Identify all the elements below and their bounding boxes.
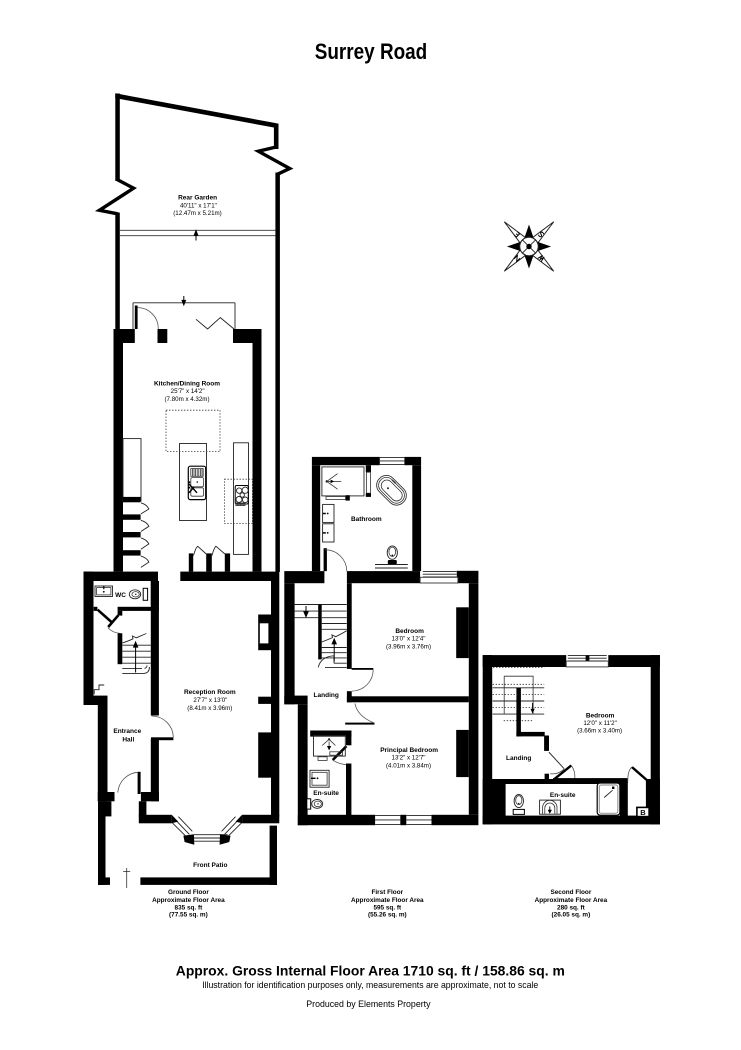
svg-text:12'0" x 11'2": 12'0" x 11'2" xyxy=(583,720,616,727)
svg-text:Landing: Landing xyxy=(314,692,339,699)
svg-text:Bedroom: Bedroom xyxy=(586,712,615,719)
svg-text:13'2" x 12'7": 13'2" x 12'7" xyxy=(392,755,426,762)
svg-text:Rear Garden: Rear Garden xyxy=(178,195,217,202)
svg-text:(77.55 sq. m): (77.55 sq. m) xyxy=(169,912,208,919)
svg-text:Principal Bedroom: Principal Bedroom xyxy=(380,747,438,754)
svg-text:595 sq. ft: 595 sq. ft xyxy=(373,904,402,911)
svg-text:(4.01m x 3.84m): (4.01m x 3.84m) xyxy=(386,762,431,769)
svg-text:Kitchen/Dining Room: Kitchen/Dining Room xyxy=(154,380,220,387)
svg-text:Ground Floor: Ground Floor xyxy=(168,889,209,896)
svg-text:Surrey Road: Surrey Road xyxy=(315,39,428,64)
svg-text:Approx. Gross Internal Floor A: Approx. Gross Internal Floor Area 1710 s… xyxy=(176,962,565,978)
svg-text:(7.80m x 4.32m): (7.80m x 4.32m) xyxy=(164,396,209,403)
svg-text:Bedroom: Bedroom xyxy=(395,628,424,635)
svg-text:27'7" x 13'0": 27'7" x 13'0" xyxy=(193,697,227,704)
svg-text:Approximate Floor Area: Approximate Floor Area xyxy=(152,897,225,904)
svg-text:First Floor: First Floor xyxy=(371,889,403,896)
svg-text:40'11" x 17'1": 40'11" x 17'1" xyxy=(180,202,217,209)
svg-text:Front Patio: Front Patio xyxy=(193,862,227,869)
svg-text:Second Floor: Second Floor xyxy=(550,889,591,896)
svg-text:(3.66m x 3.40m): (3.66m x 3.40m) xyxy=(577,728,622,735)
svg-text:WC: WC xyxy=(115,592,126,599)
svg-text:Landing: Landing xyxy=(506,755,531,762)
svg-text:Approximate Floor Area: Approximate Floor Area xyxy=(351,897,424,904)
svg-text:(26.05 sq. m): (26.05 sq. m) xyxy=(552,912,591,919)
svg-text:280 sq. ft: 280 sq. ft xyxy=(557,904,586,911)
svg-text:(55.26 sq. m): (55.26 sq. m) xyxy=(368,912,407,919)
svg-text:Produced by Elements Property: Produced by Elements Property xyxy=(306,999,431,1009)
svg-text:En-suite: En-suite xyxy=(313,790,339,797)
svg-text:Illustration for identificatio: Illustration for identification purposes… xyxy=(202,980,538,990)
svg-text:Reception Room: Reception Room xyxy=(184,689,236,696)
svg-text:835 sq. ft: 835 sq. ft xyxy=(175,904,204,911)
svg-text:B: B xyxy=(640,808,646,817)
svg-text:Bathroom: Bathroom xyxy=(351,516,382,523)
svg-text:(8.41m x 3.96m): (8.41m x 3.96m) xyxy=(187,705,232,712)
svg-text:En-suite: En-suite xyxy=(550,792,576,799)
svg-text:(3.96m x 3.76m): (3.96m x 3.76m) xyxy=(386,643,431,650)
svg-text:Approximate Floor Area: Approximate Floor Area xyxy=(535,897,608,904)
svg-text:25'7" x 14'2": 25'7" x 14'2" xyxy=(171,388,205,395)
svg-text:(12.47m x 5.21m): (12.47m x 5.21m) xyxy=(173,210,222,217)
svg-text:Entrance: Entrance xyxy=(113,728,141,735)
svg-text:13'0" x 12'4": 13'0" x 12'4" xyxy=(392,636,426,643)
svg-text:Hall: Hall xyxy=(122,737,134,744)
